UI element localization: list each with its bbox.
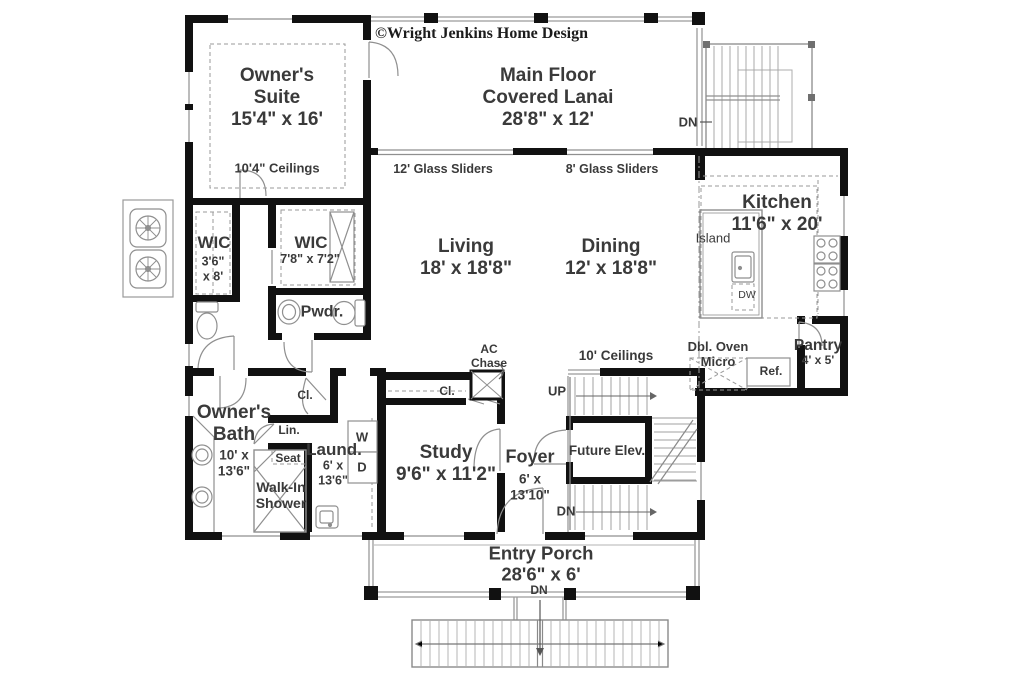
ac-chase-glyph <box>471 363 503 399</box>
utility-sink <box>316 506 338 528</box>
washer-dryer <box>348 421 377 483</box>
floor-plan: ©Wright Jenkins Home Design Owner's Suit… <box>0 0 1024 683</box>
dashed-lines <box>196 44 838 530</box>
ac-condenser-units <box>123 200 173 297</box>
entry-steps-bottom <box>412 600 668 667</box>
powder-toilet <box>333 300 365 326</box>
central-stair <box>570 377 697 530</box>
floor-plan-drawing <box>0 0 1024 683</box>
copyright-text: ©Wright Jenkins Home Design <box>375 25 588 43</box>
railings-and-porch-lines <box>369 17 702 620</box>
exterior-stair-top <box>700 41 815 155</box>
kitchen-island <box>700 210 762 318</box>
powder-sink <box>278 300 300 324</box>
walk-in-shower-glyph <box>254 450 306 532</box>
bath-vanity <box>192 416 214 532</box>
wic-shelf <box>330 212 354 282</box>
fixtures <box>123 200 840 532</box>
cooktop-burners <box>814 236 840 291</box>
refrigerator-glyph <box>747 358 790 386</box>
toilet <box>196 302 218 339</box>
